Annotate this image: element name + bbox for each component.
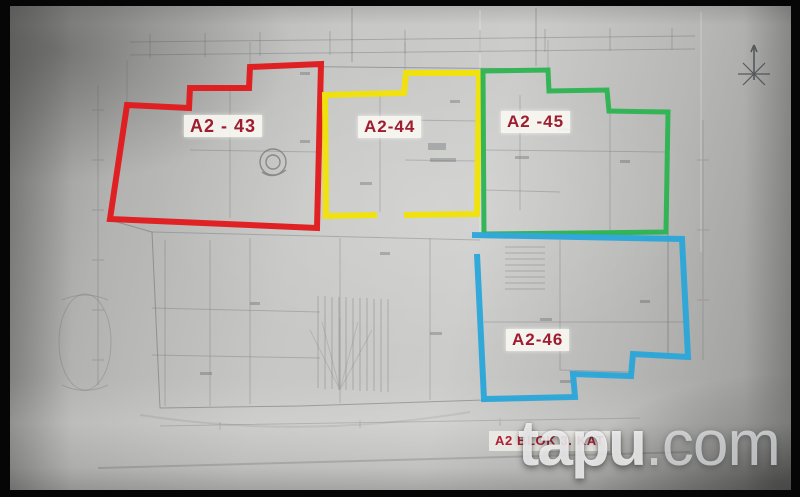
watermark-brand: tapu: [518, 407, 645, 479]
blueprint-lines: [59, 28, 709, 430]
unit-label-a2-43: A2 - 43: [184, 115, 262, 137]
unit-outline-a2-44: [325, 73, 479, 216]
unit-outline-a2-46: [472, 235, 688, 399]
unit-label-a2-45: A2 -45: [501, 111, 570, 133]
unit-outline-a2-43: [110, 64, 321, 228]
photo-frame-bottom: [0, 490, 800, 497]
photo-frame-top: [0, 0, 800, 6]
unit-label-a2-44: A2-44: [358, 116, 421, 138]
listing-photo: A2 - 43 A2-44 A2 -45 A2-46 A2 BLOK 3. KA…: [0, 0, 800, 497]
unit-label-a2-46: A2-46: [506, 329, 569, 351]
watermark-tld: .com: [645, 407, 780, 479]
north-arrow-icon: [738, 45, 770, 85]
tapu-watermark: tapu.com: [518, 408, 780, 478]
photo-frame-right: [791, 0, 800, 497]
photo-frame-left: [0, 0, 10, 497]
